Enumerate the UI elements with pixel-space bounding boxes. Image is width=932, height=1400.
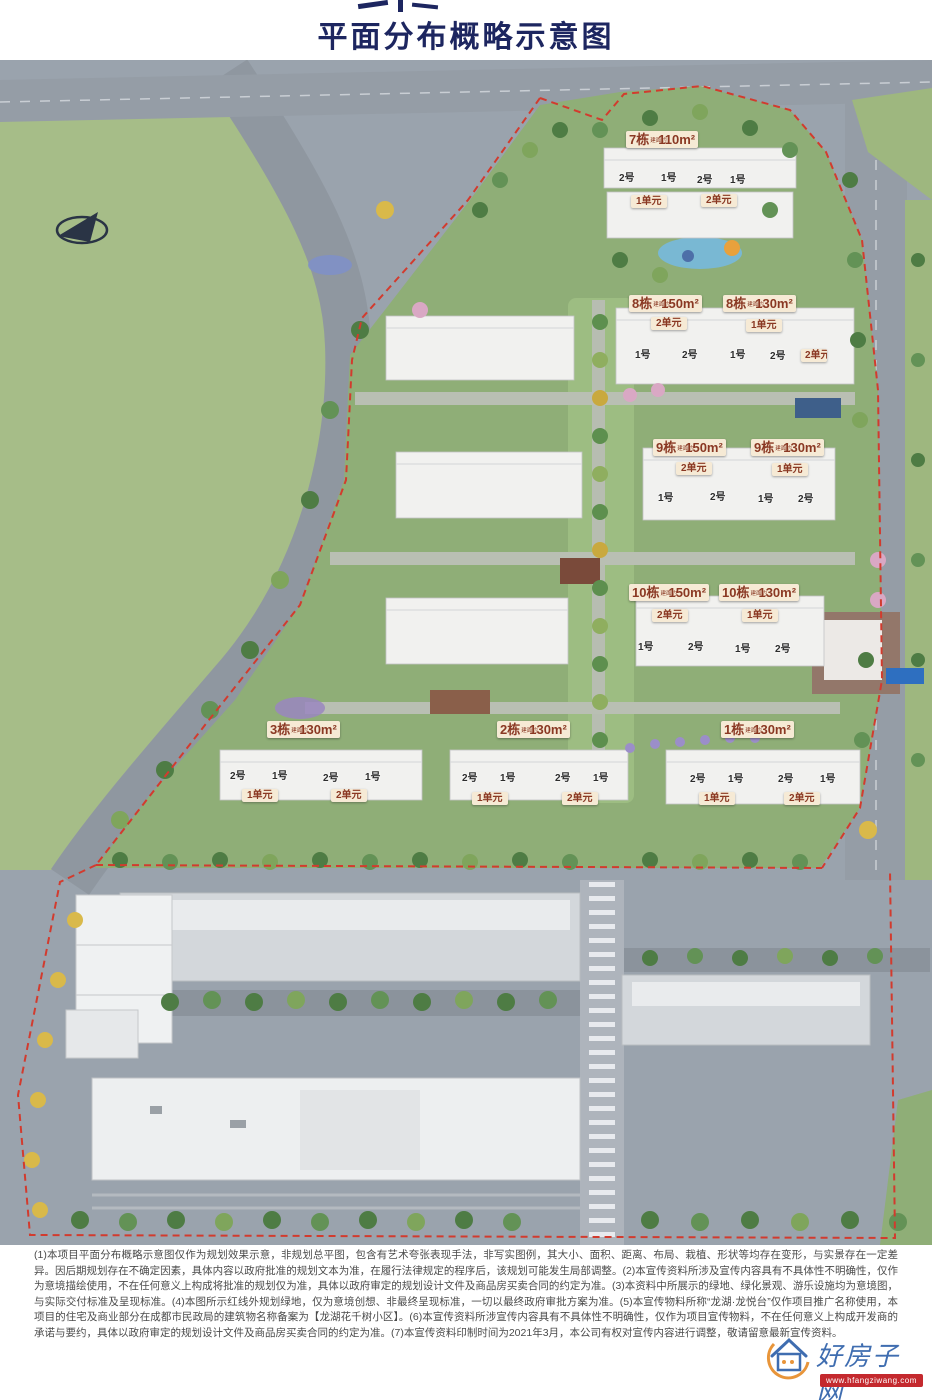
cropped-text-fragments <box>398 0 403 12</box>
unit-number: 2号 <box>697 171 713 186</box>
unit-number: 2号 <box>798 490 814 505</box>
section-label: 2单元 <box>676 462 712 475</box>
unit-number: 2号 <box>230 767 246 782</box>
unit-number: 2号 <box>688 638 704 653</box>
watermark-site-name: 好房子网 <box>816 1336 924 1400</box>
page: 平面分布概略示意图 <box>0 0 932 1400</box>
unit-number: 1号 <box>658 489 674 504</box>
section-label: 2单元 <box>652 609 688 622</box>
unit-number: 1号 <box>500 769 516 784</box>
building-label-8-130: 8栋建面约130m² <box>723 295 796 312</box>
building-label-9-130: 9栋建面约130m² <box>751 439 824 456</box>
watermark: 好房子网 www.hfangziwang.com <box>764 1332 924 1394</box>
unit-number: 1号 <box>638 638 654 653</box>
site-plan-rendering <box>0 60 932 1245</box>
cropped-text-fragments <box>358 0 388 9</box>
unit-number: 2号 <box>778 770 794 785</box>
unit-number: 2号 <box>323 769 339 784</box>
section-label: 1单元 <box>746 319 782 332</box>
section-label: 1单元 <box>631 195 667 208</box>
building-label-1: 1栋建面约130m² <box>721 721 794 738</box>
section-label: 2单元 <box>701 194 737 207</box>
unit-number: 2号 <box>690 770 706 785</box>
unit-number: 2号 <box>462 769 478 784</box>
watermark-house-icon <box>764 1332 816 1390</box>
unit-number: 1号 <box>272 767 288 782</box>
unit-number: 1号 <box>593 769 609 784</box>
unit-number: 2号 <box>710 488 726 503</box>
section-label: 1单元 <box>772 463 808 476</box>
page-title: 平面分布概略示意图 <box>0 12 932 56</box>
unit-number: 2号 <box>770 347 786 362</box>
section-label-partial: 2单元 <box>801 349 827 362</box>
unit-number: 1号 <box>820 770 836 785</box>
unit-number: 1号 <box>730 171 746 186</box>
building-label-2: 2栋建面约130m² <box>497 721 570 738</box>
unit-number: 2号 <box>775 640 791 655</box>
unit-number: 2号 <box>619 169 635 184</box>
unit-number: 1号 <box>735 640 751 655</box>
unit-number: 1号 <box>728 770 744 785</box>
disclaimer-text: (1)本项目平面分布概略示意图仅作为规划效果示意，非规划总平图，包含有艺术夸张表… <box>34 1248 898 1341</box>
building-label-3: 3栋建面约130m² <box>267 721 340 738</box>
building-label-9-150: 9栋建面约150m² <box>653 439 726 456</box>
section-label: 1单元 <box>472 792 508 805</box>
building-label-8-150: 8栋建面约150m² <box>629 295 702 312</box>
unit-number: 1号 <box>661 169 677 184</box>
building-label-10-150: 10栋建面约150m² <box>629 584 709 601</box>
section-label: 2单元 <box>331 789 367 802</box>
unit-number: 1号 <box>635 346 651 361</box>
unit-number: 2号 <box>555 769 571 784</box>
unit-number: 1号 <box>730 346 746 361</box>
section-label: 1单元 <box>699 792 735 805</box>
section-label: 1单元 <box>742 609 778 622</box>
section-label: 2单元 <box>562 792 598 805</box>
cropped-text-fragments <box>412 3 438 10</box>
watermark-url: www.hfangziwang.com <box>820 1374 923 1387</box>
building-label-10-130: 10栋建面约130m² <box>719 584 799 601</box>
unit-number: 1号 <box>758 490 774 505</box>
section-label: 1单元 <box>242 789 278 802</box>
building-label-7: 7栋建面约110m² <box>626 131 698 148</box>
unit-number: 2号 <box>682 346 698 361</box>
unit-number: 1号 <box>365 768 381 783</box>
section-label: 2单元 <box>784 792 820 805</box>
section-label: 2单元 <box>651 317 687 330</box>
